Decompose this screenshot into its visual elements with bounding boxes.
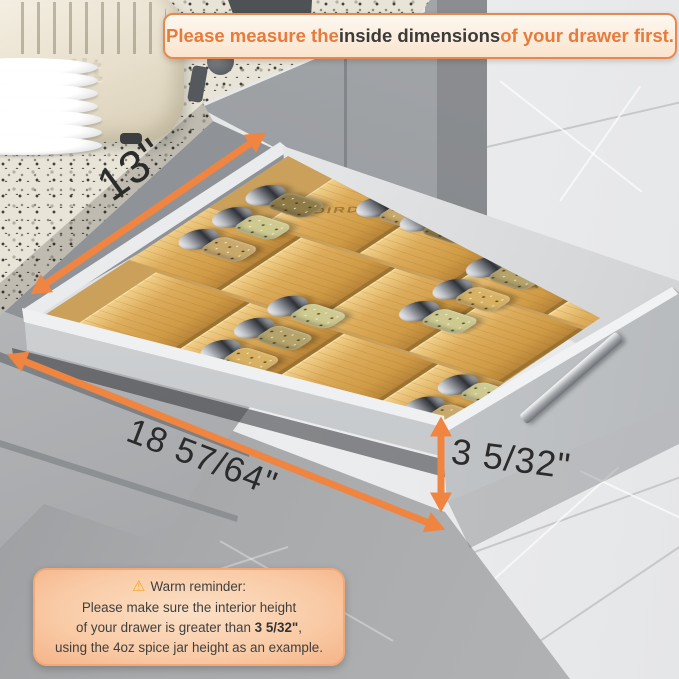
reminder-line3: using the 4oz spice jar height as an exa… [55,638,323,658]
reminder-line2-bold: 3 5/32" [255,620,299,635]
plate [0,136,102,155]
reminder-title: Warm reminder: [150,579,245,594]
reminder-line1: Please make sure the interior height [82,598,296,618]
banner-text-dark: inside dimensions [339,25,500,47]
reminder-line2-punct: , [298,620,302,635]
plate-stack [0,64,98,155]
product-image: Dualit AADIRD AADIRD [0,0,679,679]
reminder-title-row: ⚠Warm reminder: [132,576,246,599]
banner-text-orange: of your drawer first. [500,25,674,47]
warm-reminder-box: ⚠Warm reminder: Please make sure the int… [33,568,345,666]
reminder-line2-text: of your drawer is greater than [76,620,255,635]
dimension-arrow-height [438,431,445,499]
warning-icon: ⚠ [132,578,145,595]
measure-instruction-banner: Please measure the inside dimensions of … [163,13,677,59]
reminder-line2: of your drawer is greater than 3 5/32", [76,618,302,638]
banner-text-orange: Please measure the [166,25,339,47]
